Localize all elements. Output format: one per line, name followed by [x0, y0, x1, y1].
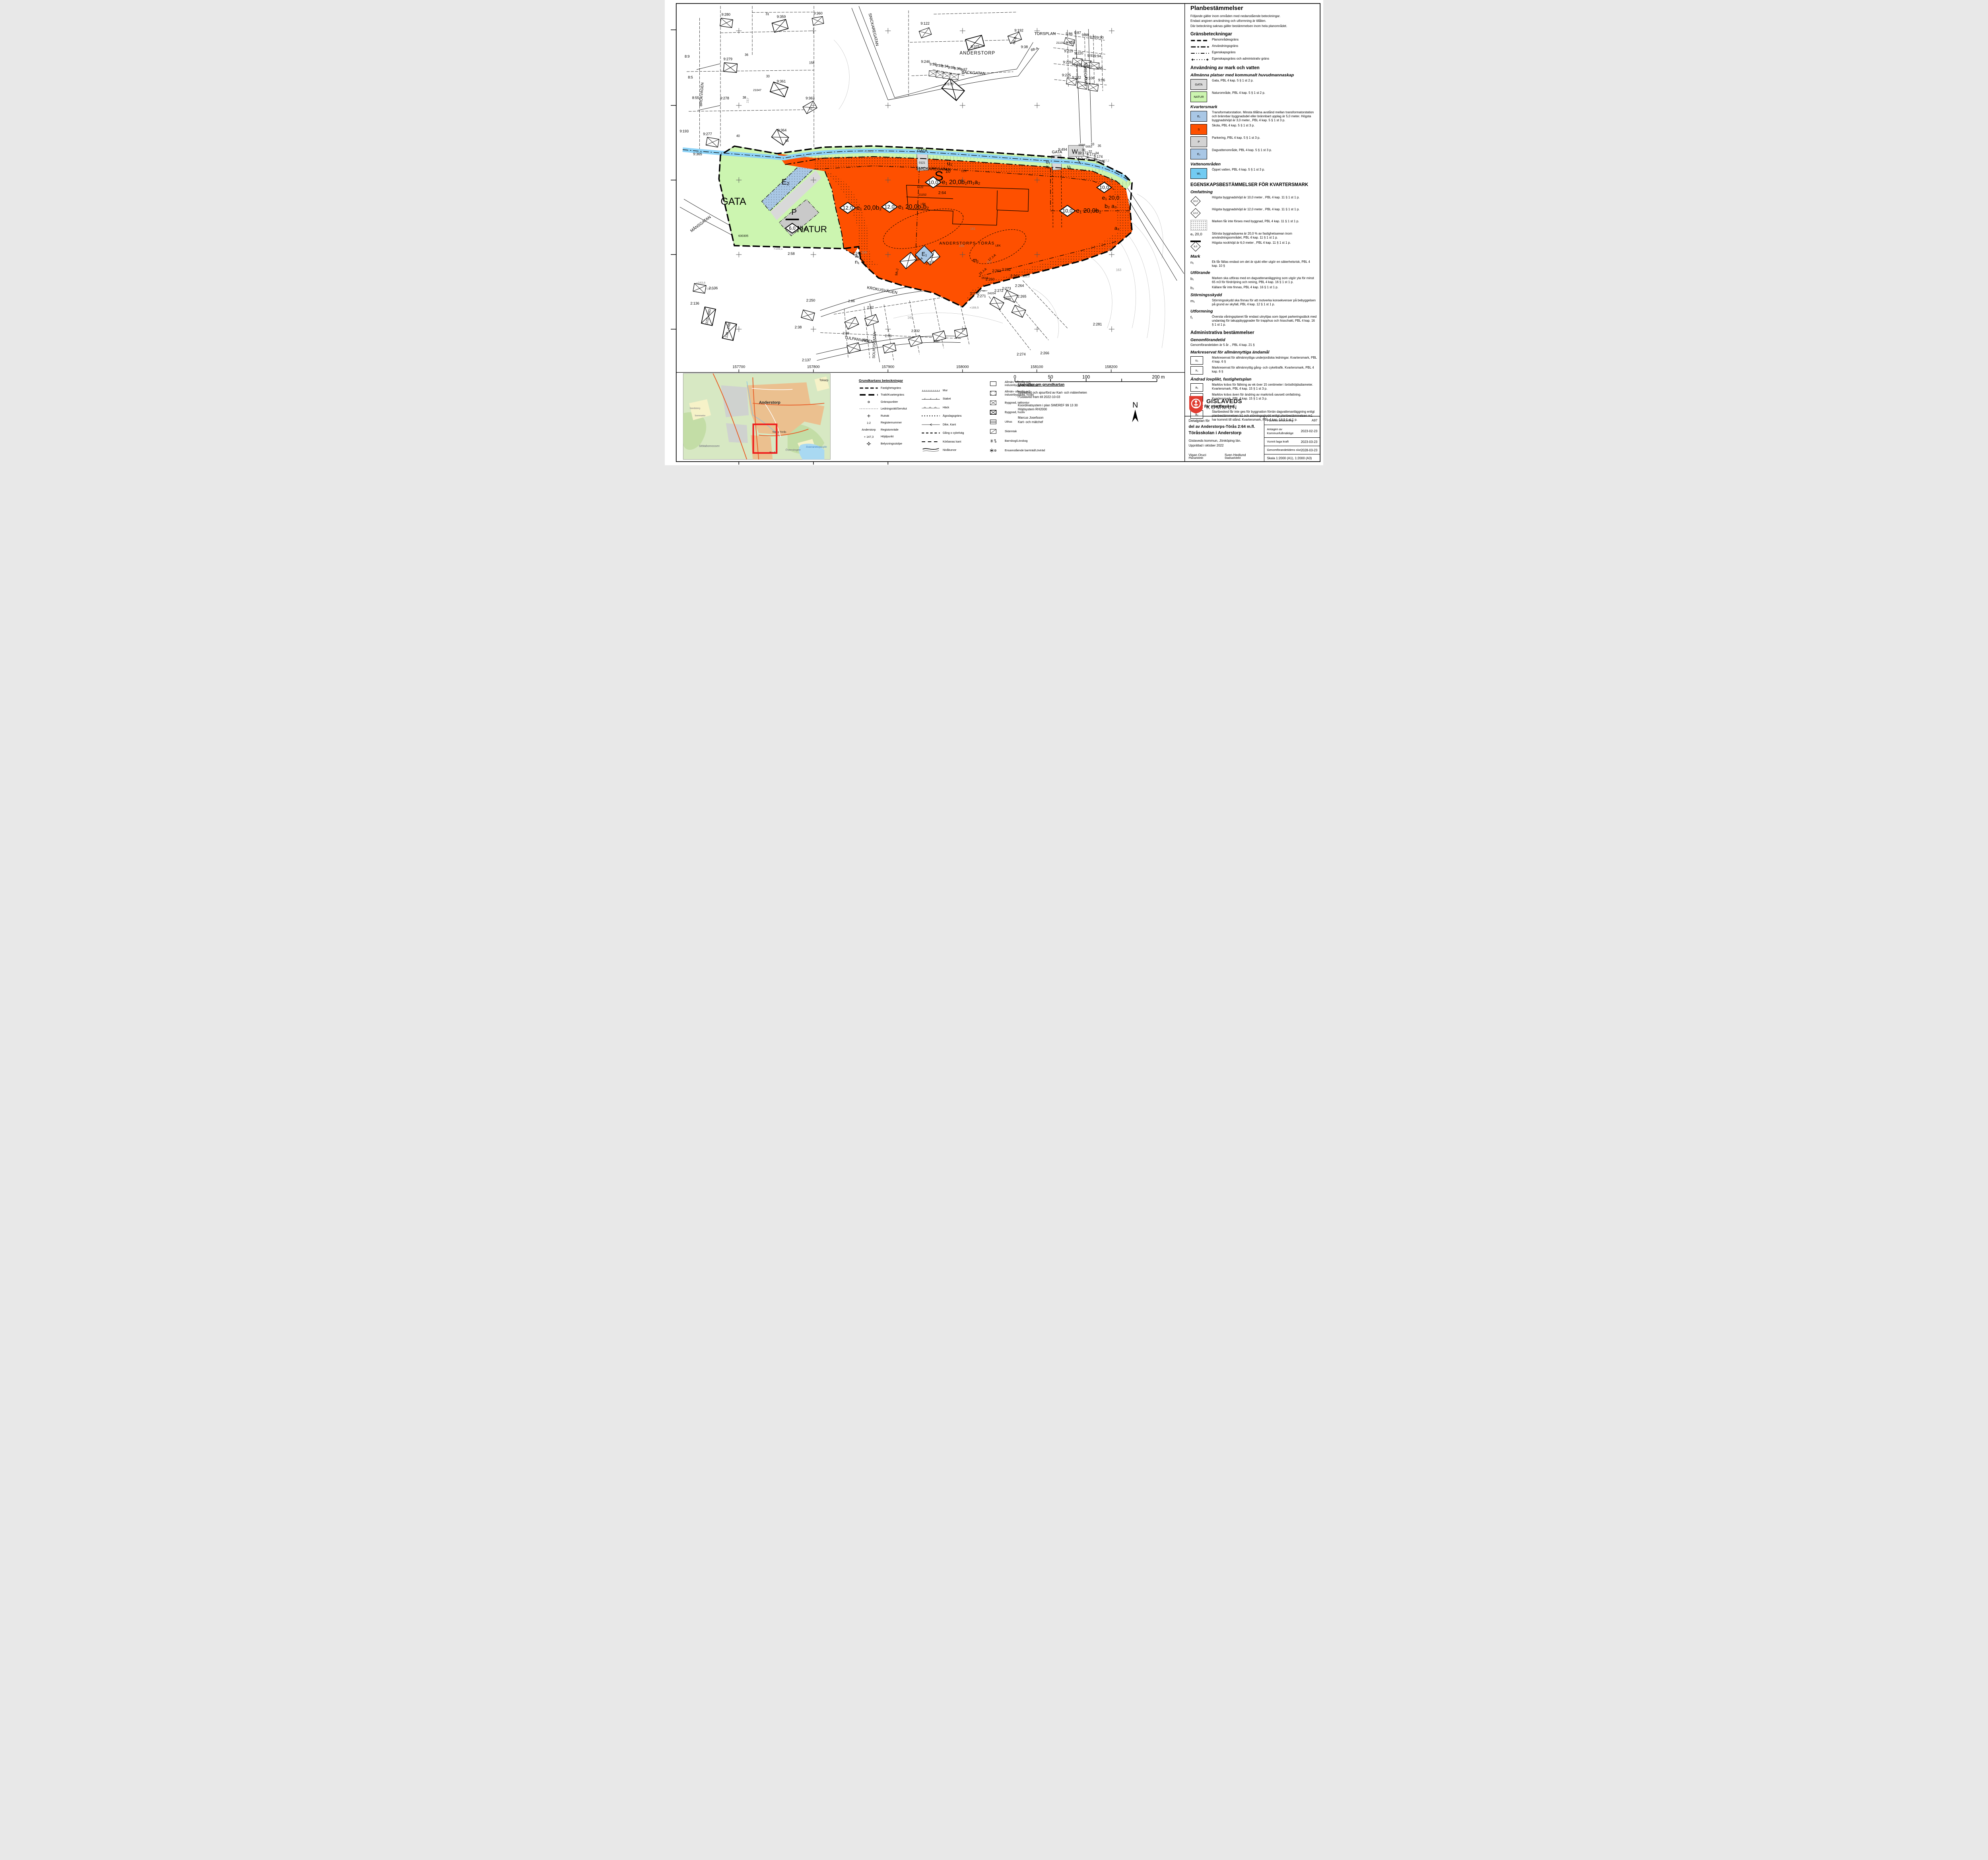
panel-p: Följande gäller inom områden med nedanst… [1190, 14, 1317, 18]
panel-row: E₂Dagvattenområde, PBL 4 kap. 5 § 1 st 3… [1190, 148, 1317, 159]
legend-row: + 147,3Höjdpunkt [859, 434, 919, 440]
map-label: 9:225 [1062, 73, 1071, 77]
overview-label: Tokarp [819, 379, 829, 382]
map-label: +157,2 [1100, 159, 1109, 162]
map-label: +156,1 [864, 149, 874, 153]
admin-symbol: u₁ [1190, 356, 1203, 365]
panel-row: n₁Ek får fällas endast om det är sjukt e… [1190, 260, 1317, 268]
logo-text-2: KOMMUN [1206, 404, 1242, 410]
map-label: 9:459 [1066, 41, 1075, 45]
map-label: 9:365 [693, 152, 702, 156]
map-label: P [791, 208, 797, 217]
legend-label: Barrskog/Lövskog [1005, 439, 1028, 443]
map-label: 9:192 [1014, 29, 1023, 33]
trakt-icon [859, 392, 879, 397]
grundkarta-info-line: Höjdsystem RH2000 [1018, 408, 1141, 412]
swatch-symbol: P [1190, 136, 1209, 147]
panel-row-text: Användningsgräns [1212, 44, 1317, 48]
panel-row-text: Dagvattenområde, PBL 4 kap. 5 § 1 st 3 p… [1212, 148, 1317, 152]
use-swatch: E₁ [1190, 111, 1207, 122]
map-label: 0121 [919, 161, 925, 164]
map-label: 9:90 [1097, 36, 1104, 40]
overview-label: Svarvaretorpasjön [806, 446, 827, 448]
text-icon: Anderstorp [859, 428, 879, 431]
property-symbol: b₁ [1190, 277, 1194, 281]
panel-h3: Ändrad lovplikt, fastighetsplan [1190, 377, 1317, 382]
map-label: GATA [720, 196, 746, 207]
panel-h3: Allmänna platser med kommunalt huvudmann… [1190, 73, 1317, 78]
fastighet-icon [859, 386, 879, 390]
map-label: +159,1 [773, 247, 782, 250]
panel-row: W₁Öppet vatten, PBL 4 kap. 5 § 1 st 3 p. [1190, 168, 1317, 179]
swatch-symbol: E₂ [1190, 148, 1209, 159]
property-symbol: e₁ 20,0 [1190, 232, 1202, 237]
map-label: 21047 [753, 88, 761, 92]
map-label: 32 [1089, 150, 1092, 153]
legend-label: Nivåkurvor [943, 448, 956, 452]
svg-text:e₁ 20,0b₂: e₁ 20,0b₂ [1076, 208, 1101, 214]
overview-label: Österskogen [785, 448, 801, 452]
title-block-row: Genomförandetidens slut2028-03-23 [1264, 446, 1320, 454]
overview-label: Stötabomossen [699, 444, 720, 448]
map-label: 2:271 [977, 294, 986, 298]
title-block-scale-row: Skala 1:2000 (A1), 1:2000 (A3) [1264, 454, 1320, 462]
plan-title-1: del av Anderstorps-Törås 2:64 m.fl. [1189, 425, 1261, 429]
panel-row: b₁Marken ska utföras med en dagvattenanl… [1190, 276, 1317, 284]
panel-row: 6,0Högsta nockhöjd är 6,0 meter , PBL 4 … [1190, 241, 1317, 252]
panel-row: 12,0Högsta byggnadshöjd är 12,0 meter , … [1190, 208, 1317, 218]
agoslag-icon [921, 414, 941, 418]
map-label: u₁ [947, 160, 952, 167]
panel-row-text: Ek får fällas endast om det är sjukt ell… [1212, 260, 1317, 268]
title-block-row: Antagen av Kommunfullmäktige2023-02-23 [1264, 425, 1320, 438]
plain-symbol: e₁ 20,0 [1190, 232, 1209, 237]
map-label: 630305 [738, 234, 748, 237]
map-label: 9:106 [1085, 76, 1095, 80]
map-label: 24204 [988, 291, 996, 295]
text-icon: 1:2 [859, 421, 879, 425]
line-egen-icon [1190, 51, 1209, 56]
legend-label: Häck [943, 406, 949, 409]
map-label: 30 [1082, 148, 1085, 152]
panel-row: GATAGata, PBL 4 kap. 5 § 1 st 2 p. [1190, 79, 1317, 90]
legend-row: Staket [921, 395, 981, 403]
municipality: Gislaveds kommun, Jönköping län. [1189, 439, 1261, 443]
map-label: 9:38 [1021, 45, 1028, 49]
map-label: 9:87 [1074, 31, 1081, 35]
legend-label: Ensamstående barrträd/Lövträd [1005, 449, 1045, 452]
map-label: 2:281 [1093, 322, 1102, 326]
rutnat-icon [859, 414, 879, 418]
map-label: 156 [800, 155, 806, 159]
panel-row-text: Marken ska utföras med en dagvattenanläg… [1212, 276, 1317, 284]
map-label: 9:361 [777, 80, 786, 83]
panel-p: Genomförandetiden är 5 år ., PBL 4 kap. … [1190, 343, 1317, 347]
panel-row-text: Parkering, PBL 4 kap. 5 § 1 st 3 p. [1212, 136, 1317, 140]
title-block-right: Planens beteckningA97Antagen av Kommunfu… [1264, 416, 1320, 462]
korbana-icon [921, 439, 941, 444]
panel-row-text: Störningsskydd ska finnas för att motver… [1212, 299, 1317, 307]
scale-text: Skala 1:2000 (A1), 1:2000 (A3) [1267, 456, 1312, 460]
map-label: 8:5 [688, 76, 693, 80]
signature-1: Vigan Oruci Planarkitekt [1189, 453, 1225, 460]
legend-label: Belysningsstolpe [881, 442, 902, 445]
map-label: 52 [809, 107, 813, 111]
legend-row: 1:2Registernummer [859, 420, 919, 426]
map-label: 2:262 [1002, 268, 1011, 272]
legend-label: Staket [943, 397, 951, 400]
title-block-row: Vunnit laga kraft2023-03-23 [1264, 438, 1320, 446]
legend-row: Nivåkurvor [921, 447, 981, 454]
map-label: 40 [736, 134, 740, 138]
legend-row: Trakt/Kvartergräns [859, 392, 919, 398]
line-egenadm-symbol [1190, 57, 1209, 62]
map-label: NATUR [797, 224, 827, 234]
map-label: 9:359 [777, 15, 786, 19]
map-label: 9:221 [1073, 63, 1082, 67]
panel-row-text: Öppet vatten, PBL 4 kap. 5 § 1 st 3 p. [1212, 168, 1317, 172]
line-plan-icon [1190, 38, 1209, 43]
property-symbol: n₁ [1190, 260, 1194, 265]
map-label: 2:136 [690, 301, 699, 305]
map-label: 9:280 [722, 13, 731, 17]
legend-label: Ledningsrätt/Servitut [881, 407, 907, 410]
map-label: 2:273 [1002, 286, 1011, 290]
legend-label: Fastighetsgräns [881, 386, 901, 390]
svg-text:e₁ 20,0b₂: e₁ 20,0b₂ [856, 204, 882, 211]
map-label: 36 [745, 53, 748, 57]
map-label: 9:122 [920, 21, 930, 25]
map-label: 9:96 [1098, 78, 1105, 82]
nock-symbol: 6,0 [1190, 241, 1209, 252]
panel-row-text: Översta våningsplanet får endast utnyttj… [1212, 315, 1317, 327]
map-label: 165 [959, 244, 965, 248]
map-label: 0513 [982, 276, 988, 280]
map-label: 158200 [1105, 365, 1118, 369]
map-label: m₁ [973, 257, 979, 263]
map-label: ANDERSTORP [960, 51, 996, 56]
title-block: Detaljplan för del av Anderstorps-Törås … [1185, 416, 1320, 462]
title-block-row-label: Planens beteckning [1267, 419, 1293, 422]
overview-label: Norra Törås [773, 431, 786, 434]
panel-row-text: Marken får inte förses med byggnad, PBL … [1212, 219, 1317, 223]
panel-row: u₁Markreservat för allmännyttiga underjo… [1190, 356, 1317, 365]
map-label: 2:87 [867, 305, 874, 309]
logo-text-1: GISLAVEDS [1206, 398, 1242, 404]
map-label: 9:222 [1072, 76, 1081, 80]
legend-row: Barrskog/Lövskog [984, 437, 1050, 445]
scale-bar-label: 100 [1082, 375, 1090, 380]
legend-label: Körbanas kant [943, 440, 961, 443]
niva-icon [921, 448, 941, 452]
map-label: +169,5 [970, 306, 979, 309]
bygghus-icon [984, 410, 1003, 415]
legend-label: Höjdpunkt [881, 435, 893, 438]
skog-icon [984, 439, 1003, 443]
legend-label: Registernummer [881, 421, 902, 424]
dotted-symbol [1190, 219, 1209, 231]
title-block-row-value: 2023-03-23 [1301, 440, 1318, 444]
map-label: 54 [785, 139, 789, 143]
grundkarta-info-line: Marcus Josefsson [1018, 416, 1141, 420]
map-label: 9:219 [1064, 49, 1073, 53]
map-label: 9:36 [954, 67, 961, 71]
grundkarta-legend-heading: Grundkartans beteckningar [859, 379, 919, 382]
legend-row: Gång o cykelväg [921, 429, 981, 437]
panel-h2: Administrativa bestämmelser [1190, 330, 1317, 335]
svg-text:10,0: 10,0 [1099, 185, 1109, 190]
map-label: a₃ [1114, 225, 1120, 231]
svg-text:6,0: 6,0 [789, 226, 796, 231]
mur-icon [921, 388, 941, 393]
title-block-row-value: A97 [1312, 419, 1318, 422]
signature-2: Sven Hedlund Stadsarkitekt [1225, 453, 1261, 460]
plan-title-2: Töråsskolan i Anderstorp [1189, 431, 1261, 435]
panel-row: f₁Översta våningsplanet får endast utnyt… [1190, 315, 1317, 327]
panel-row-text: Källare får inte finnas, PBL 4 kap. 16 §… [1212, 285, 1317, 289]
panel-h3: Genomförandetid [1190, 338, 1317, 342]
logo-shield-icon [1188, 395, 1204, 414]
map-label: 163 [1116, 268, 1122, 272]
grundkarta-info-line: Koordinatsystem i plan SWEREF 99 13 30 [1018, 404, 1141, 408]
title-block-row: Planens beteckningA97 [1264, 416, 1320, 425]
detaljplan-sheet: 12,0e₁ 20,0b₂12,0e₁ 20,0b₁b₂10,0e₁ 20,0b… [665, 0, 1323, 465]
gislaveds-kommun-logo: GISLAVEDS KOMMUN [1188, 395, 1242, 414]
grundkarta-info-line [1018, 412, 1141, 416]
map-label: LEK [920, 203, 926, 206]
map-label: 38 [743, 96, 746, 99]
use-swatch: S [1190, 124, 1207, 135]
map-label: e₁ 20,0 [1102, 194, 1120, 201]
map-label: GATA [917, 149, 928, 153]
legend-row: Belysningsstolpe [859, 441, 919, 447]
map-label: 157700 [732, 365, 745, 369]
panel-row: Planområdesgräns [1190, 38, 1317, 43]
byggtak-icon [984, 400, 1003, 405]
panel-h2: Användning av mark och vatten [1190, 66, 1317, 70]
map-label: E₂ [782, 178, 790, 186]
map-label: 158 [809, 61, 815, 65]
legend-label: Uthus [1005, 420, 1012, 423]
panel-row: PParkering, PBL 4 kap. 5 § 1 st 3 p. [1190, 136, 1317, 147]
map-label: 2:86 [848, 299, 855, 303]
plain-symbol: m₁ [1190, 299, 1209, 303]
map-label: 157800 [807, 365, 820, 369]
legend-row: Dike, Kant [921, 421, 981, 429]
map-label: 31 [766, 12, 769, 16]
swatch-symbol: W₁ [1190, 168, 1209, 179]
grundkarta-info: Uppgifter om grundkartan Upprättad och a… [1018, 382, 1141, 425]
use-swatch: P [1190, 136, 1207, 147]
map-label: 0596 [1079, 143, 1085, 147]
grundkarta-info-line: Upprättad och ajourförd av Kart- och mät… [1018, 391, 1141, 395]
overview-label: Sandsberg [689, 408, 700, 410]
title-block-row-label: Antagen av Kommunfullmäktige [1267, 427, 1301, 435]
panel-h3: Vattenområden [1190, 162, 1317, 167]
property-symbol: m₁ [1190, 299, 1195, 303]
legend-row: Ensamstående barrträd/Lövträd [984, 446, 1050, 455]
no-build-swatch [1190, 220, 1207, 231]
map-label: 8:55 [692, 96, 699, 100]
panel-row-text: Egenskapsgräns [1212, 50, 1317, 54]
title-block-left: Detaljplan för del av Anderstorps-Törås … [1185, 416, 1264, 462]
plain-symbol: f₁ [1190, 315, 1209, 320]
panel-p: Där beteckning saknas gäller bestämmelse… [1190, 24, 1317, 28]
map-label: 2:250 [806, 298, 815, 302]
map-label: 2:92 [933, 339, 940, 343]
legend-label: Dike, Kant [943, 423, 956, 426]
use-swatch: W₁ [1190, 168, 1207, 179]
use-swatch: E₂ [1190, 149, 1207, 159]
map-label: 167 [986, 260, 992, 264]
box-symbol: u₁ [1190, 356, 1209, 365]
map-label: LEK [996, 245, 1001, 247]
panel-h3: Omfattning [1190, 190, 1317, 194]
servitut-icon [859, 406, 879, 411]
legend-row: Rutnät [859, 413, 919, 419]
panel-row: b₂Källare får inte finnas, PBL 4 kap. 16… [1190, 285, 1317, 290]
panel-row: m₁Störningsskydd ska finnas för att motv… [1190, 299, 1317, 307]
title-block-row-label: Vunnit laga kraft [1267, 440, 1289, 443]
legend-row: Skärmtak [984, 427, 1050, 436]
map-label: +165,0 [1021, 274, 1030, 278]
map-label: 9:34 [942, 64, 949, 68]
legend-label: Ägoslagsgräns [943, 414, 962, 417]
svg-text:12,0: 12,0 [884, 204, 894, 210]
use-swatch: GATA [1190, 79, 1207, 90]
panel-row-text: Planområdesgräns [1212, 38, 1317, 42]
map-label: 9:174 [1094, 155, 1103, 159]
map-label: 9:246 [921, 60, 930, 64]
map-label: 34 [1095, 151, 1099, 155]
panel-row-text: Transformatorstation. Minsta tillåtna av… [1212, 111, 1317, 122]
line-egen-symbol [1190, 50, 1209, 56]
map-label: 35 [1098, 144, 1101, 148]
legend-label: Registomräde [881, 428, 899, 431]
panel-row: E₁Transformatorstation. Minsta tillåtna … [1190, 111, 1317, 122]
map-label: 2:263 [1010, 274, 1019, 278]
allmhus-icon [984, 391, 1003, 396]
created-date: Upprättad i oktober 2022 [1189, 444, 1261, 447]
map-label: 9:95 [1096, 66, 1103, 70]
title-block-row-value: 2023-02-23 [1301, 429, 1318, 433]
map-label: 2:137 [802, 358, 811, 362]
title-block-row-value: 2028-03-23 [1301, 448, 1318, 452]
map-label: 2:265 [1017, 294, 1027, 298]
box-symbol: x₁ [1190, 366, 1209, 375]
height-diamond-symbol: 12,0 [1190, 208, 1201, 218]
map-label: 9:193 [679, 129, 689, 133]
swatch-symbol: GATA [1190, 79, 1209, 90]
uthus-icon [984, 419, 1003, 424]
grundkarta-legend-col1: Grundkartans beteckningar Fastighetsgrän… [859, 379, 919, 448]
admin-symbol: a₁ [1190, 383, 1203, 392]
map-label: 21131 [1056, 41, 1064, 45]
map-label: 9:277 [703, 132, 712, 136]
map-label: 21152 [918, 193, 926, 196]
map-label: 9:278 [720, 96, 729, 100]
legend-row: Ägoslagsgräns [921, 412, 981, 420]
planbestammelser-panel: PlanbestämmelserFöljande gäller inom omr… [1190, 5, 1317, 423]
belysning-icon [859, 441, 879, 446]
scale-bar-label: 200 m [1152, 375, 1165, 380]
diamond-symbol: 10,0 [1190, 196, 1209, 206]
overview-label: Anderstorp [759, 400, 780, 405]
panel-row-text: Egenskapsgräns och administrativ gräns [1212, 57, 1317, 61]
panel-h3: Utförande [1190, 270, 1317, 275]
w1-label: W₁ [1072, 148, 1080, 155]
map-label: +163,6 [696, 281, 705, 284]
map-label: 161 [970, 227, 976, 231]
height-diamond-symbol: 10,0 [1190, 196, 1201, 206]
diamond-symbol: 12,0 [1190, 208, 1209, 218]
panel-h3: Mark [1190, 254, 1317, 259]
map-label: 9:37 [960, 68, 967, 72]
plain-symbol: b₁ [1190, 276, 1209, 281]
map-label: E₁ [922, 251, 927, 257]
map-label: +164,4 [705, 287, 714, 290]
panel-row: Egenskapsgräns och administrativ gräns [1190, 57, 1317, 62]
legend-label: Gång o cykelväg [943, 431, 964, 435]
granspunkt-icon [859, 400, 879, 404]
overview-map: AnderstorpTokarpStötabomossenTöråsÖsters… [683, 373, 830, 459]
map-label: x₁ [1046, 164, 1050, 169]
panel-h2: Gränsbeteckningar [1190, 32, 1317, 37]
map-label: 2:232 [911, 329, 920, 333]
map-label: 2:64 [938, 191, 946, 195]
map-label: 33 [1091, 143, 1094, 146]
map-label: 9:363 [806, 96, 815, 100]
legend-label: Gränspunkter [881, 400, 898, 404]
box-symbol: a₁ [1190, 383, 1209, 392]
map-label: 0486 [1004, 297, 1011, 301]
legend-label: Trakt/Kvartergräns [881, 393, 904, 396]
map-label: 2:245 [852, 251, 862, 255]
legend-row: Gränspunkter [859, 399, 919, 405]
trad-icon [984, 448, 1003, 453]
map-label: 9:360 [813, 11, 823, 15]
panel-row-text: Markreservat för allmännyttiga underjord… [1212, 356, 1317, 364]
hojd-icon: + 147,3 [859, 435, 879, 439]
panel-h3: Störningsskydd [1190, 293, 1317, 297]
legend-label: Rutnät [881, 414, 889, 417]
swatch-symbol: E₁ [1190, 111, 1209, 122]
panel-h2: EGENSKAPSBESTÄMMELSER FÖR KVARTERSMARK [1190, 183, 1317, 187]
map-label: 9:89 [1089, 35, 1097, 39]
svg-text:12,0: 12,0 [843, 205, 852, 211]
map-label: 158000 [956, 365, 969, 369]
panel-row: SSkola, PBL 4 kap. 5 § 1 st 3 p. [1190, 124, 1317, 135]
allmtak-icon [984, 381, 1003, 386]
panel-row: NATURNaturområde, PBL 4 kap. 5 § 1 st 2 … [1190, 91, 1317, 102]
map-label: 158100 [1031, 365, 1043, 369]
line-egenadm-icon [1190, 57, 1209, 62]
legend-row: Häck [921, 404, 981, 412]
panel-row: a₁Marklov krävs för fällning av ek över … [1190, 383, 1317, 392]
panel-h3: Utformning [1190, 309, 1317, 314]
map-label: 9:364 [778, 128, 787, 132]
property-symbol: b₂ [1190, 286, 1194, 290]
panel-row: 10,0Högsta byggnadshöjd är 10,0 meter , … [1190, 196, 1317, 206]
panel-p: Endast angiven användning och utformning… [1190, 19, 1317, 23]
plain-symbol: n₁ [1190, 260, 1209, 265]
use-swatch: NATUR [1190, 91, 1207, 102]
title-block-row-label: Genomförandetidens slut [1267, 448, 1301, 452]
map-label: b₂ a₃ [1105, 203, 1117, 209]
map-label: 9:107 [1083, 64, 1093, 68]
swatch-symbol: NATUR [1190, 91, 1209, 102]
panel-row-text: Skola, PBL 4 kap. 5 § 1 st 3 p. [1212, 124, 1317, 128]
